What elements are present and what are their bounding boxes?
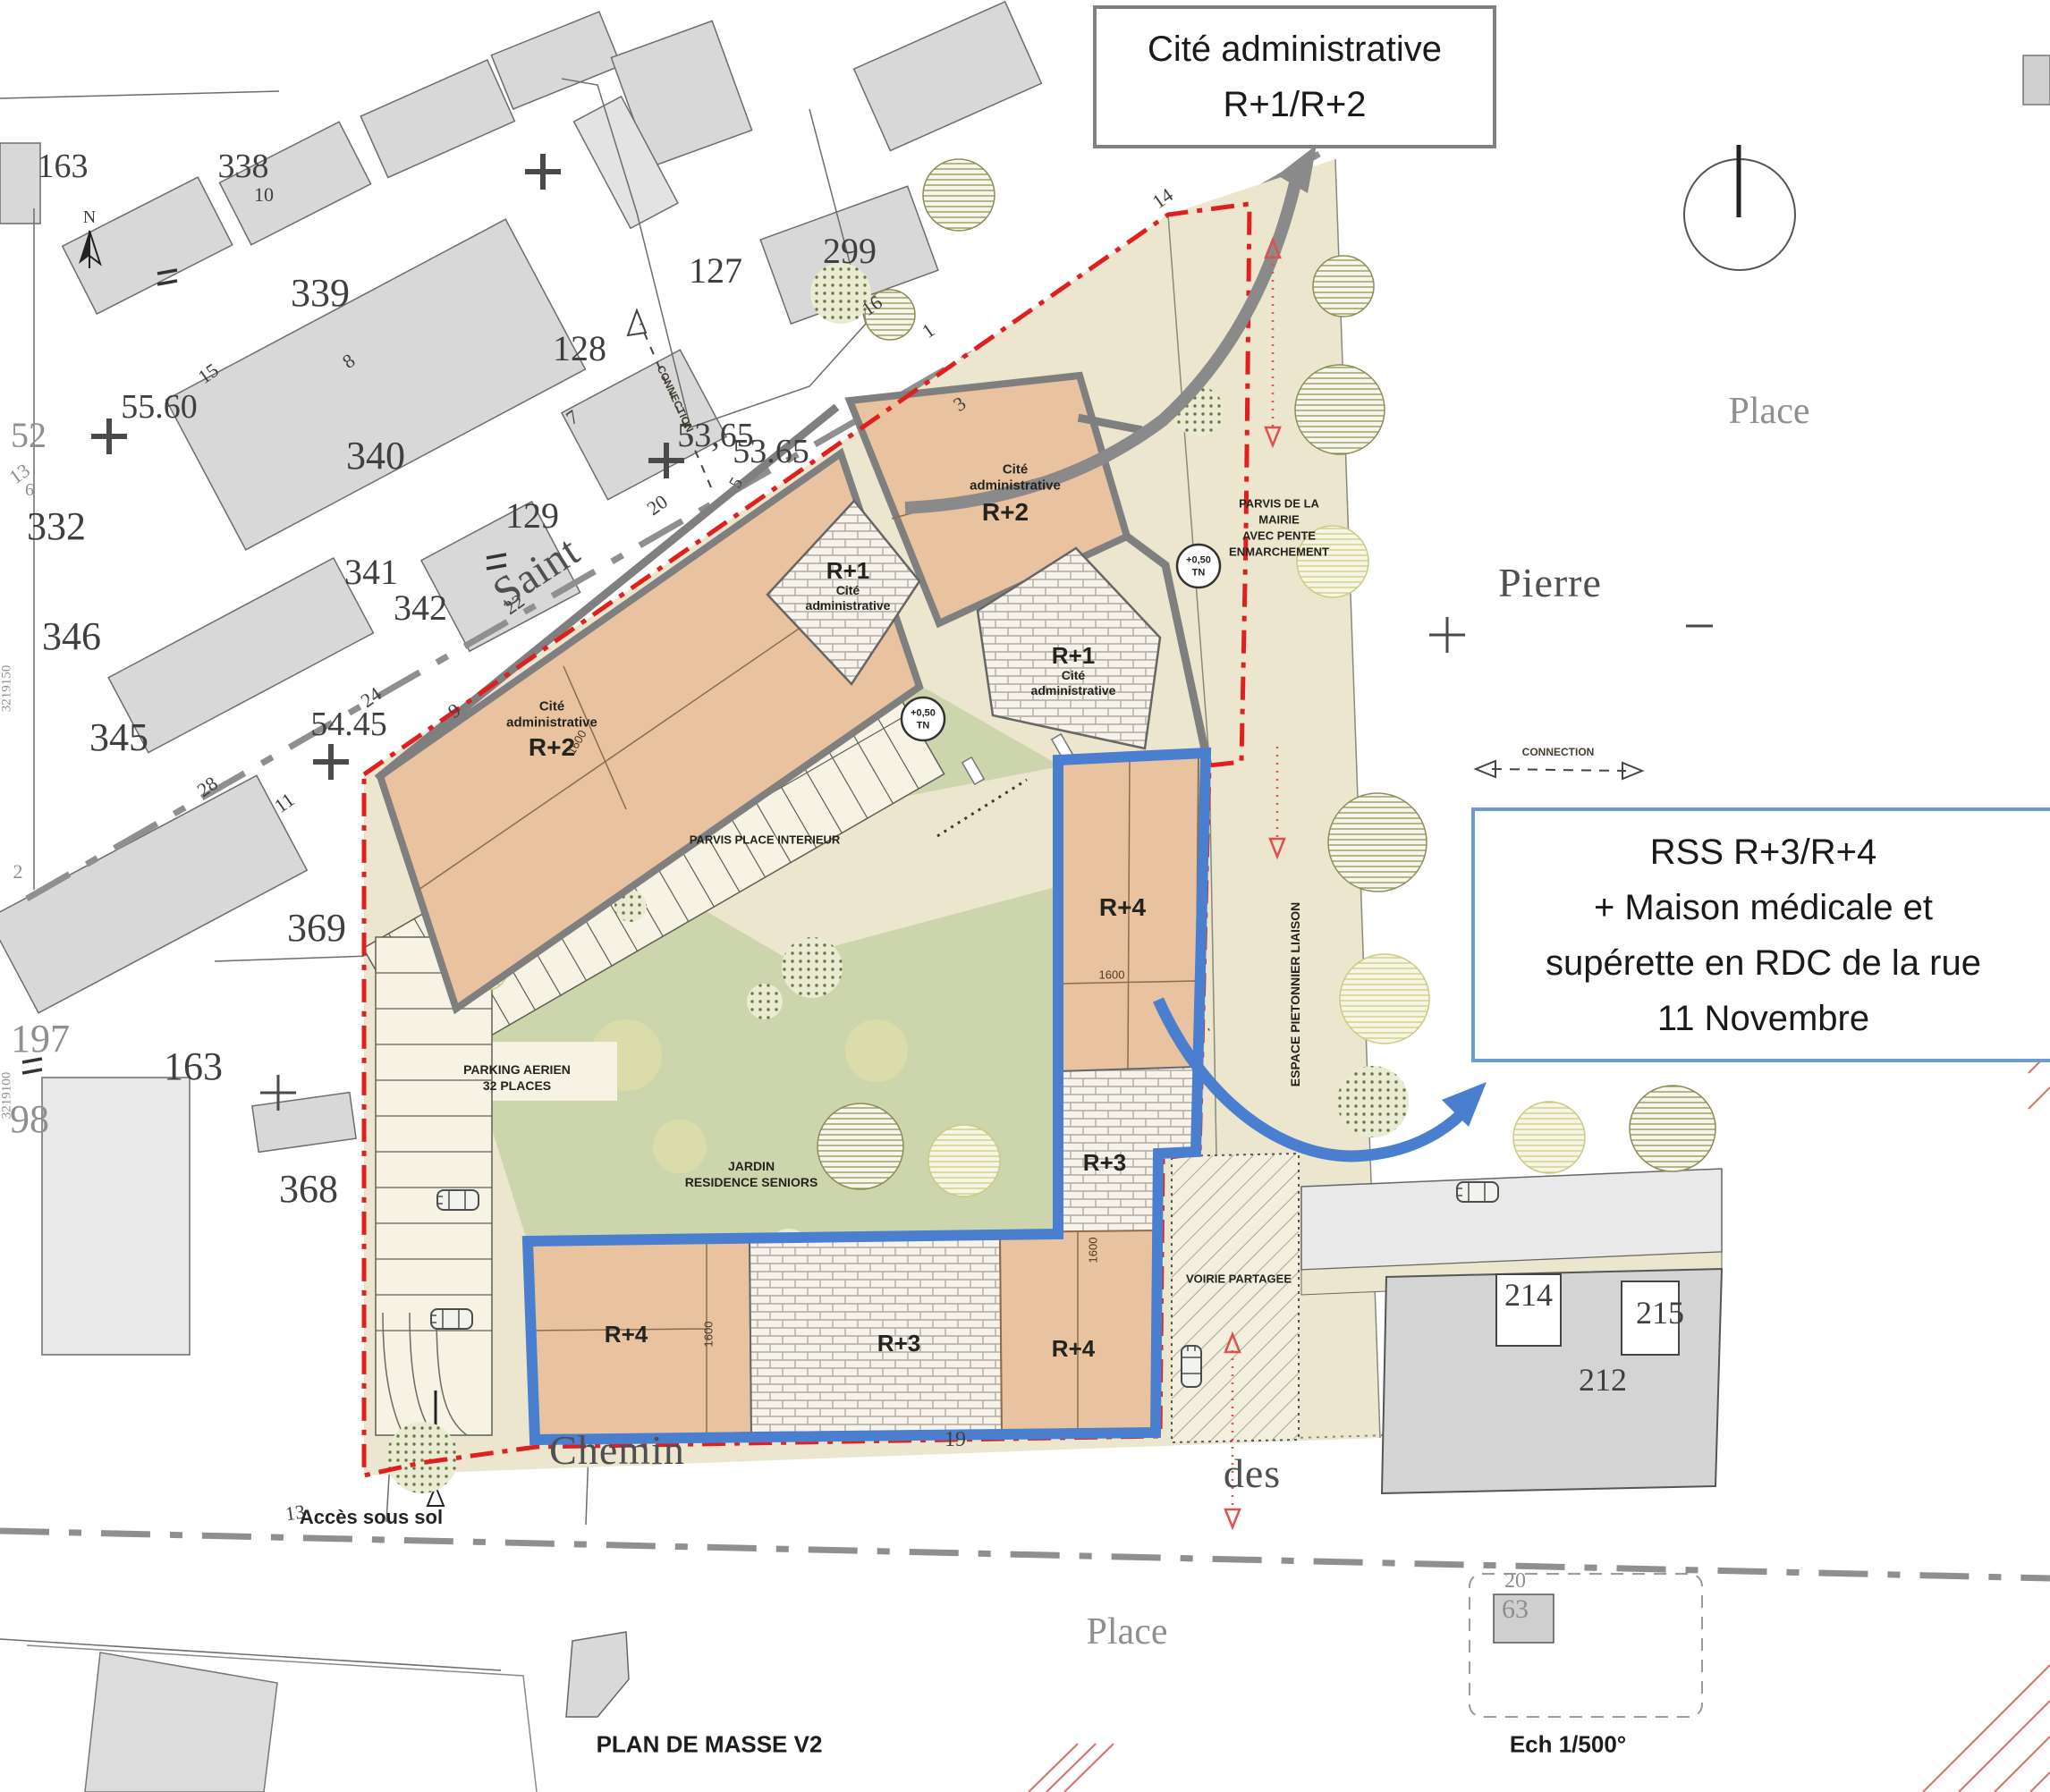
bottom-left-shapes — [85, 1632, 629, 1792]
building-r4-bottom-left — [529, 1238, 751, 1438]
callout-cite-administrative: Cité administrative R+1/R+2 — [1093, 5, 1496, 148]
voirie-partagee — [1172, 1154, 1299, 1442]
plan-title: PLAN DE MASSE V2 — [597, 1731, 823, 1759]
plan-scale: Ech 1/500° — [1510, 1731, 1626, 1759]
compass-icon — [1684, 145, 1795, 270]
parcels-212-group — [1301, 1169, 1722, 1717]
site-plan-page: 1633381033934033234134212912812729934634… — [0, 0, 2050, 1792]
building-r3-bottom — [750, 1232, 1002, 1433]
callout-rss-line3: supérette en RDC de la rue — [1546, 935, 1981, 991]
callout-rss-line1: RSS R+3/R+4 — [1650, 824, 1876, 880]
callout-rss: RSS R+3/R+4 + Maison médicale et supéret… — [1471, 807, 2050, 1062]
callout-cite-line2: R+1/R+2 — [1223, 77, 1366, 132]
callout-cite-line1: Cité administrative — [1148, 21, 1442, 77]
callout-rss-line4: 11 Novembre — [1657, 991, 1869, 1046]
callout-rss-line2: + Maison médicale et — [1594, 880, 1933, 935]
